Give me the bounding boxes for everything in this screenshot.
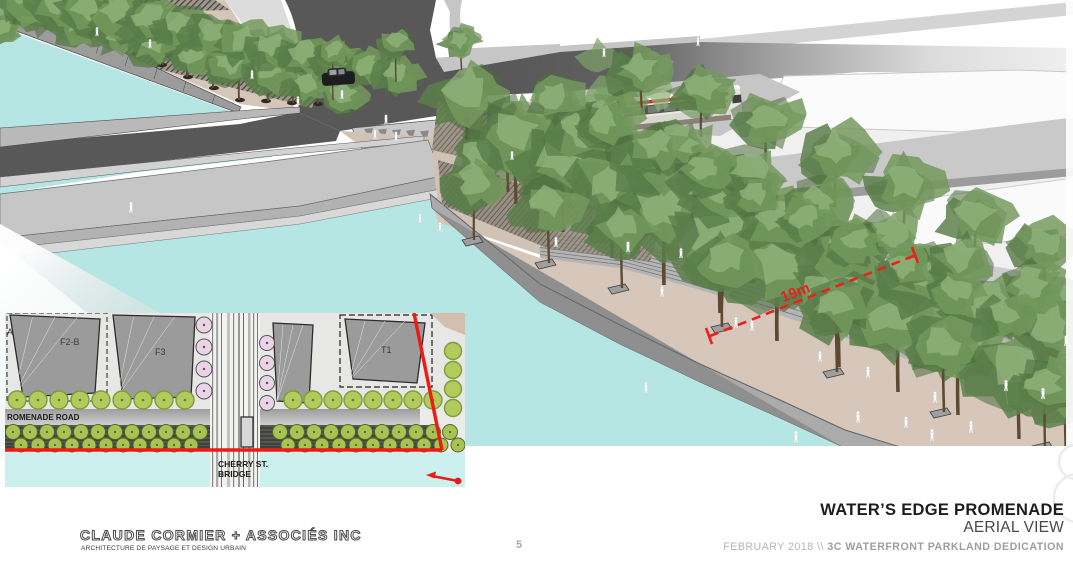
svg-text:F3: F3 — [155, 347, 166, 357]
svg-text:T1: T1 — [381, 345, 392, 355]
svg-text:A: A — [7, 327, 13, 337]
svg-text:ROMENADE ROAD: ROMENADE ROAD — [7, 413, 80, 422]
svg-text:F2-B: F2-B — [60, 337, 80, 347]
svg-text:CHERRY ST.: CHERRY ST. — [218, 459, 268, 469]
svg-text:BRIDGE: BRIDGE — [218, 469, 251, 479]
